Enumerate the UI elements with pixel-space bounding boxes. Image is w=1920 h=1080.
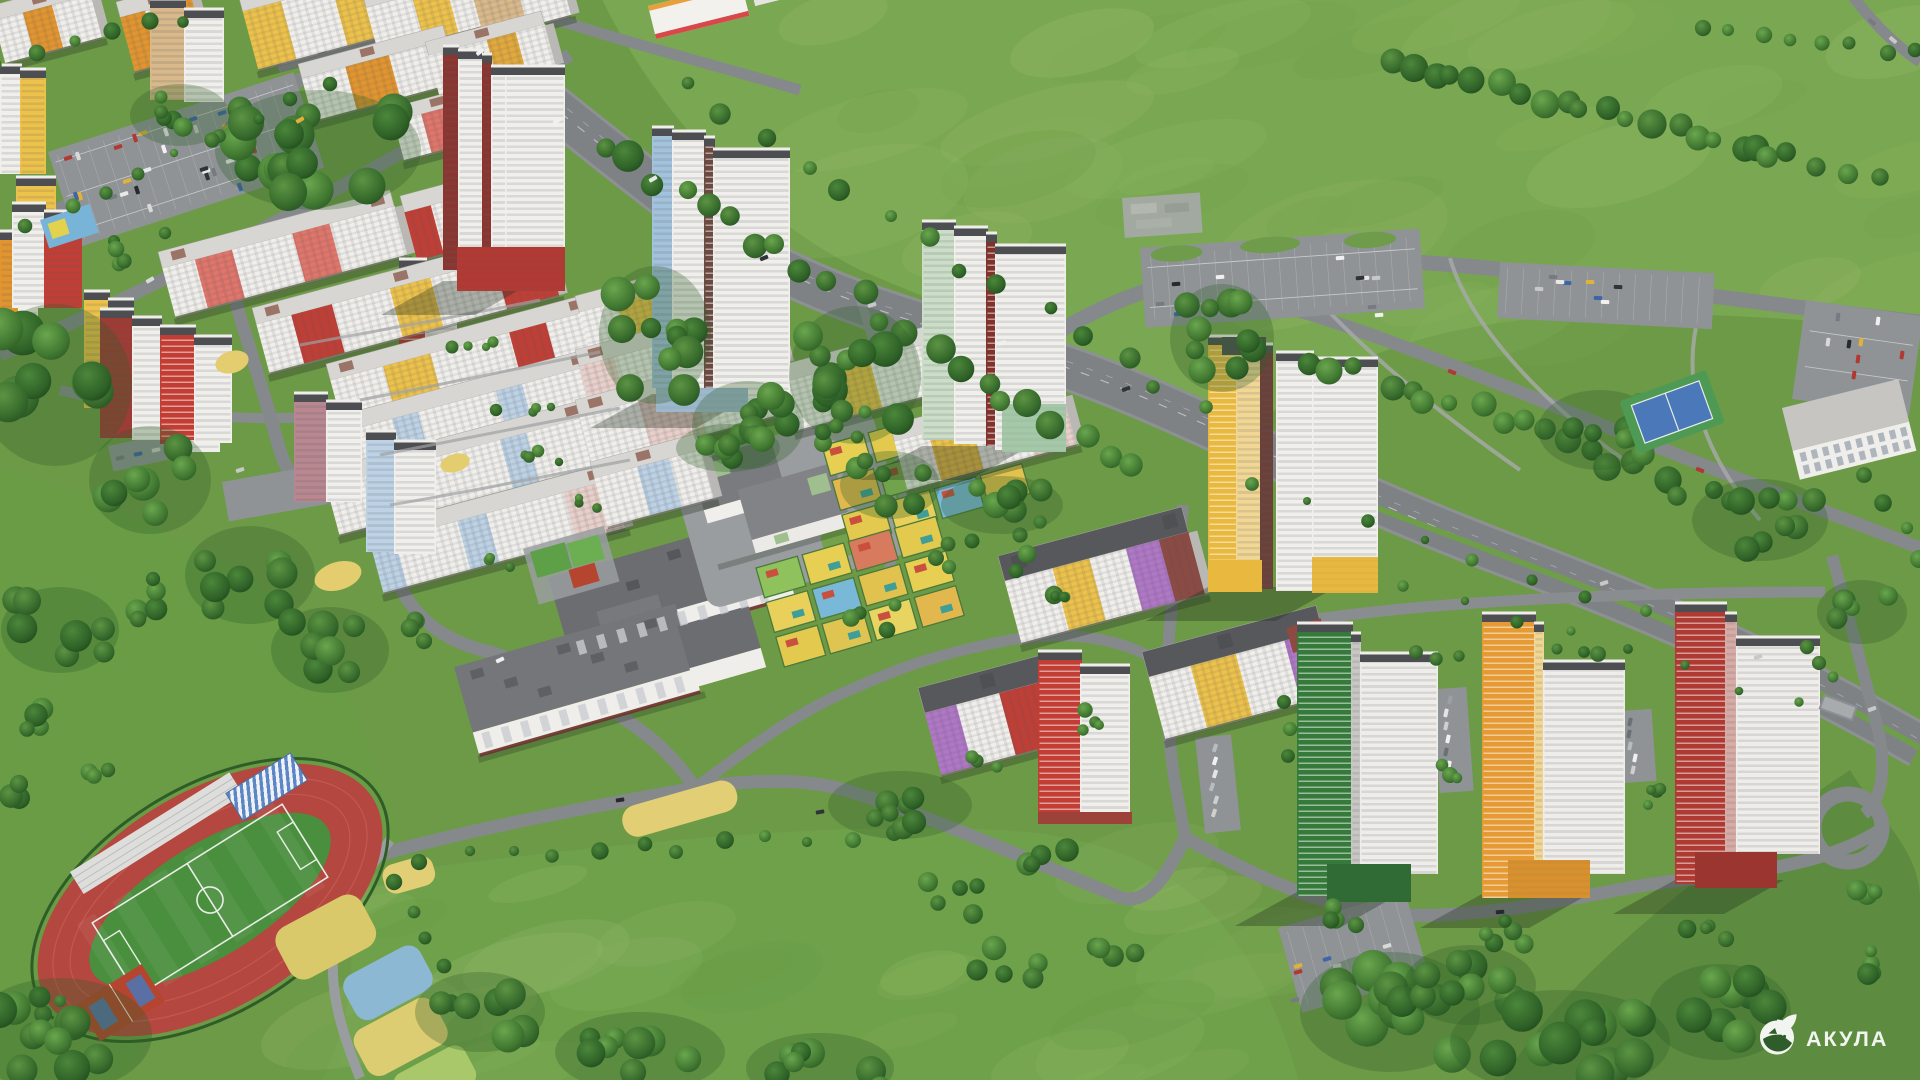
svg-text:АКУЛА: АКУЛА xyxy=(1806,1027,1888,1051)
